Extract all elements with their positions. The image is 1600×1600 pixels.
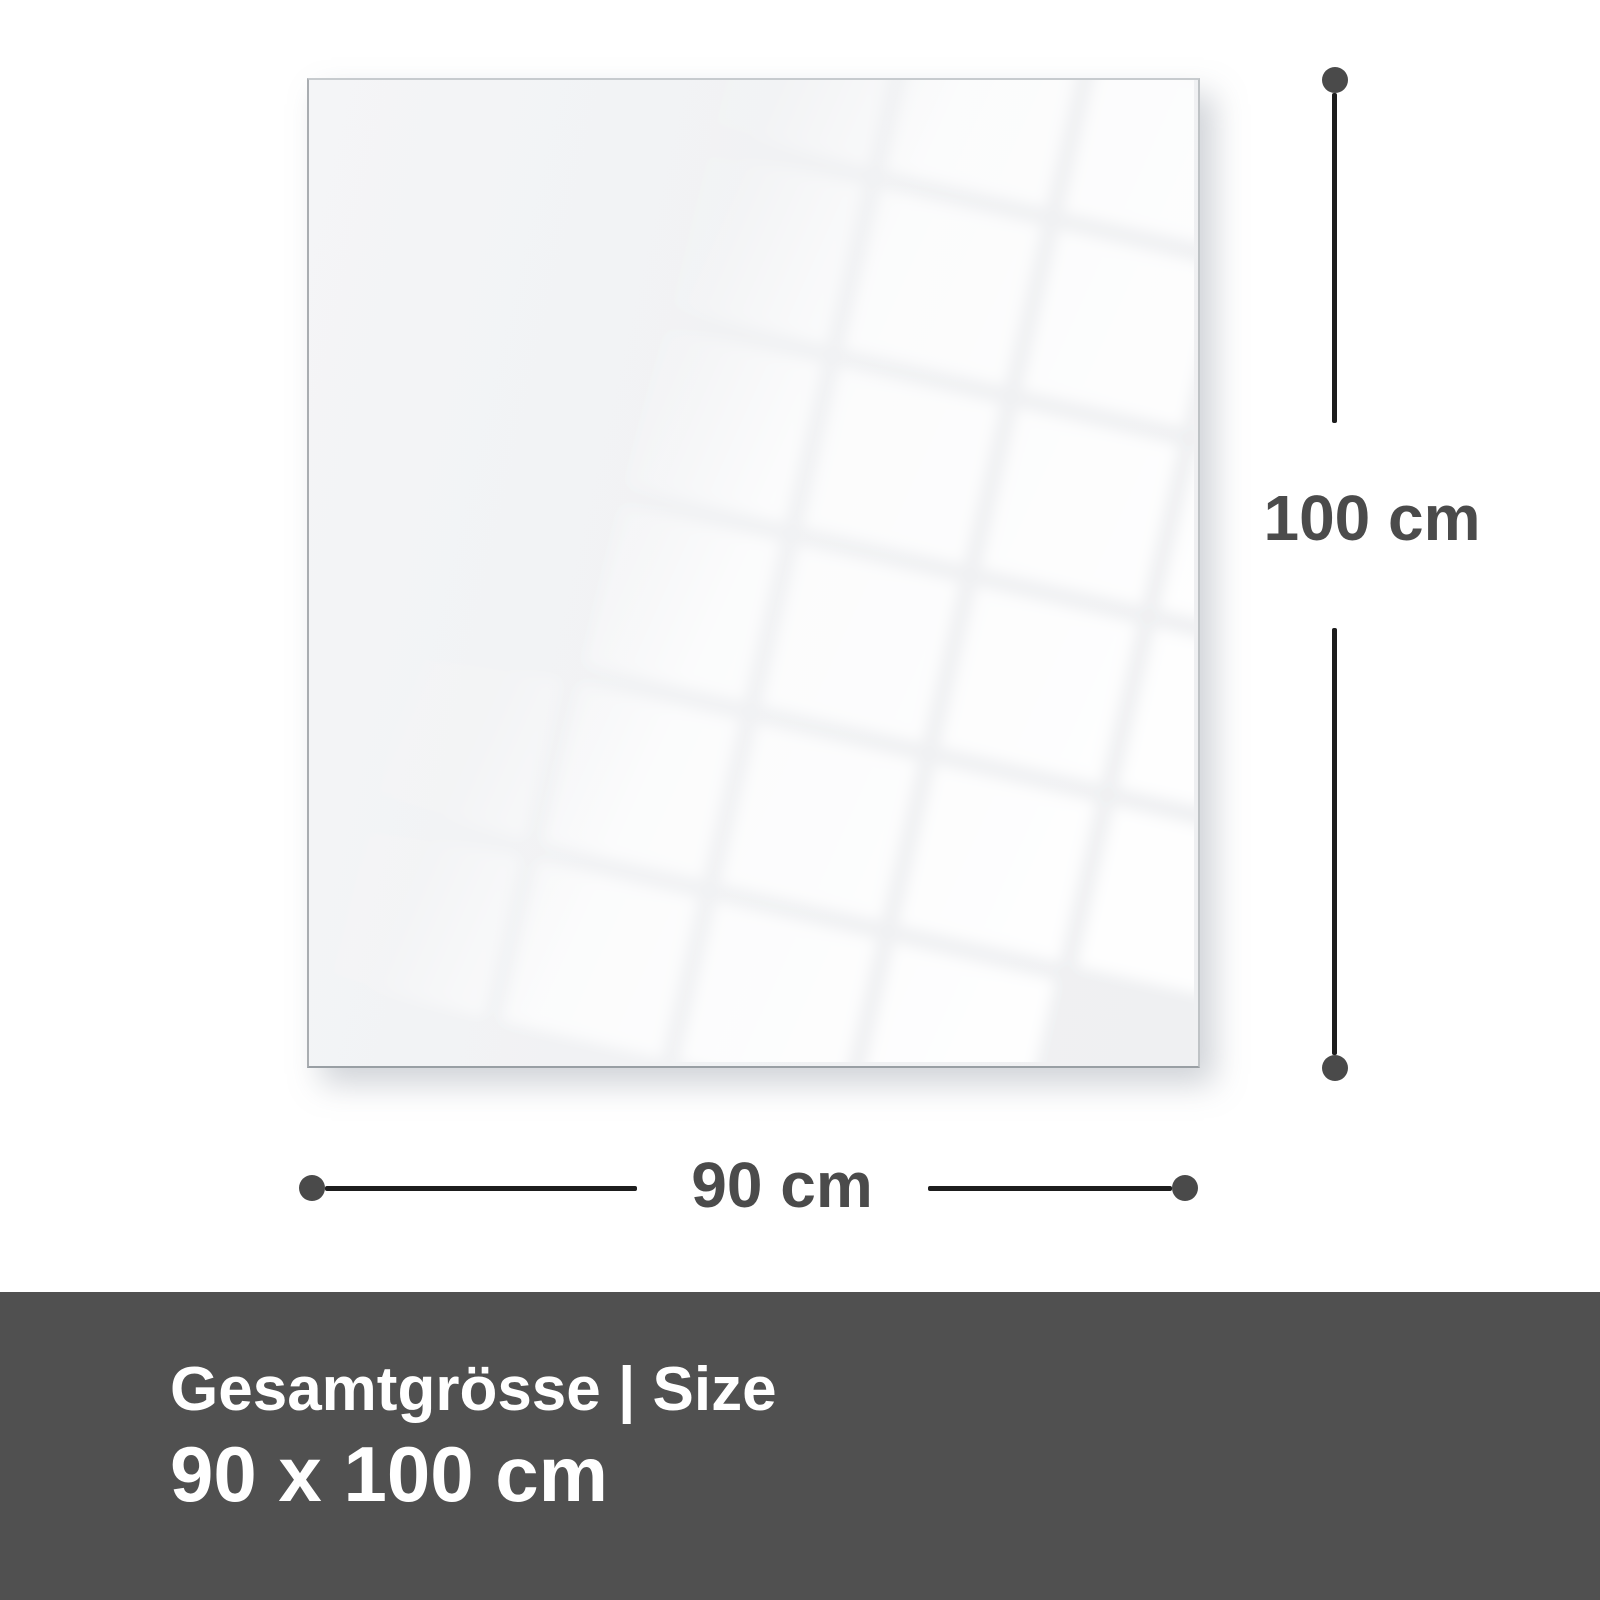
dimension-line	[928, 1186, 1172, 1191]
glass-panel	[307, 78, 1200, 1068]
dimension-line	[1332, 628, 1337, 1055]
footer-size-value: 90 x 100 cm	[170, 1434, 1540, 1514]
width-dimension-label: 90 cm	[657, 1153, 907, 1217]
dimension-endpoint-dot	[1322, 67, 1348, 93]
dimension-endpoint-dot	[299, 1175, 325, 1201]
footer-title: Gesamtgrösse | Size	[170, 1358, 1540, 1422]
height-dimension-label: 100 cm	[1242, 486, 1502, 550]
product-size-diagram: 100 cm 90 cm Gesamtgrösse | Size 90 x 10…	[0, 0, 1600, 1600]
glass-reflection-grid	[309, 80, 1194, 1062]
size-footer-bar: Gesamtgrösse | Size 90 x 100 cm	[0, 1292, 1600, 1600]
dimension-endpoint-dot	[1322, 1055, 1348, 1081]
dimension-line	[1332, 93, 1337, 423]
dimension-line	[325, 1186, 637, 1191]
dimension-endpoint-dot	[1172, 1175, 1198, 1201]
